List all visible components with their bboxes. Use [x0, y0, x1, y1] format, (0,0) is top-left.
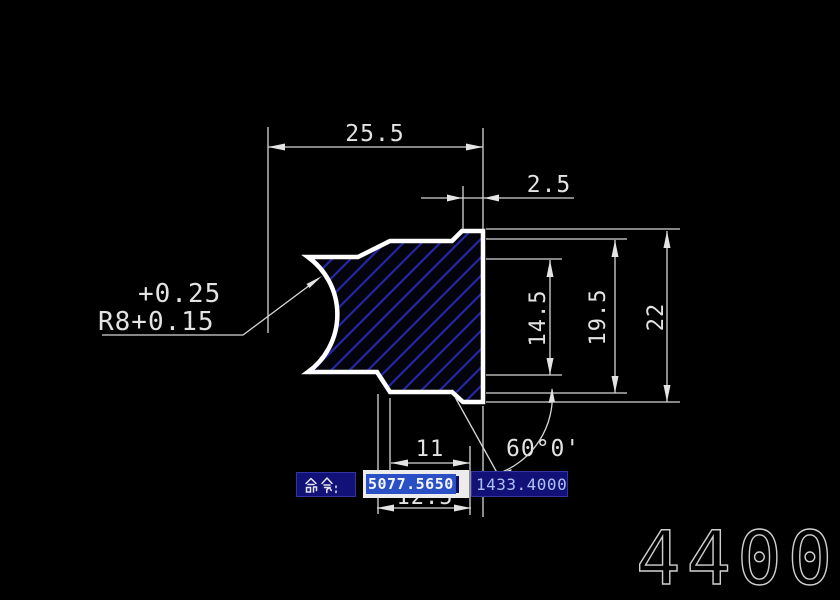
dim-step-width: 2.5 — [421, 172, 574, 229]
command-prompt-glyphs — [303, 475, 349, 496]
command-prompt-box[interactable] — [296, 472, 356, 497]
dim-text-22: 22 — [644, 303, 669, 332]
section-shape — [308, 231, 483, 402]
coordinate-y-box[interactable]: 1433.4000 — [471, 471, 568, 497]
chamfer-extension-line — [455, 397, 500, 478]
arrowhead — [664, 385, 671, 402]
arrowhead — [307, 276, 323, 288]
arrowhead — [268, 144, 285, 151]
arrowhead — [664, 231, 671, 248]
arrowhead — [484, 195, 499, 202]
text-cursor — [456, 476, 459, 493]
angle-text: 60°0' — [506, 436, 580, 462]
dim-inner-height: 14.5 — [486, 259, 562, 375]
dim-text-2-5: 2.5 — [527, 172, 572, 198]
drawing-viewport: 25.5 2.5 14.5 19.5 22 11 1 — [0, 0, 840, 600]
coordinate-x-value: 5077.5650 — [366, 474, 456, 494]
radius-leader: +0.25 R8+0.15 — [98, 276, 322, 337]
section-profile — [308, 231, 483, 402]
coordinate-y-value: 1433.4000 — [476, 475, 567, 494]
dim-text-14-5: 14.5 — [526, 290, 551, 347]
dim-text-25-5: 25.5 — [345, 121, 404, 147]
dim-text-19-5: 19.5 — [586, 289, 611, 346]
radius-text: R8+0.15 — [98, 307, 215, 337]
sheet-number: 4400 — [636, 516, 838, 600]
arrowhead — [547, 358, 554, 375]
arrowhead — [454, 505, 471, 512]
dim-mid-height: 19.5 — [486, 239, 627, 393]
arrowhead — [466, 144, 483, 151]
arrowhead — [391, 460, 408, 467]
cad-canvas: 25.5 2.5 14.5 19.5 22 11 1 — [0, 0, 840, 600]
arrowhead — [549, 388, 556, 403]
arrowhead — [447, 195, 462, 202]
dim-total-height: 22 — [486, 229, 680, 402]
radius-tolerance-text: +0.25 — [138, 279, 221, 309]
arrowhead — [612, 376, 619, 393]
coordinate-x-input[interactable]: 5077.5650 — [363, 470, 469, 498]
dim-text-11: 11 — [416, 437, 445, 462]
arrowhead — [612, 240, 619, 257]
arrowhead — [547, 260, 554, 277]
arrowhead — [377, 505, 394, 512]
arrowhead — [453, 460, 470, 467]
